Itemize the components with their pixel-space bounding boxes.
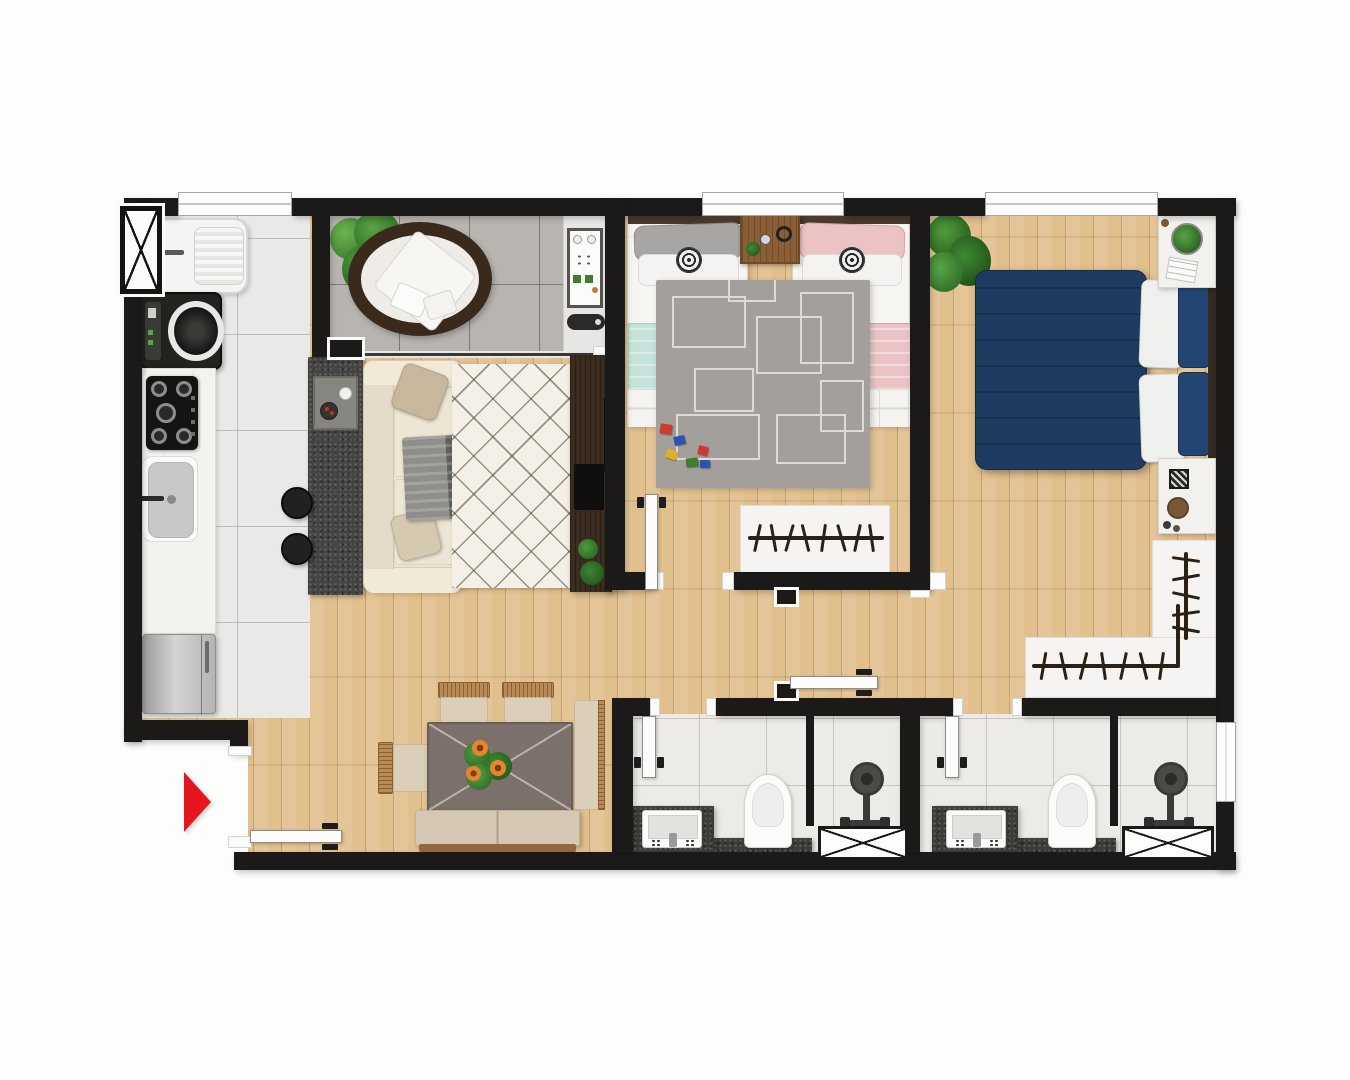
cup: [339, 387, 352, 400]
faucet-handles: [955, 839, 965, 846]
faucet-handles: [651, 839, 661, 846]
jamb-kids-wall-end: [930, 572, 946, 590]
burner: [151, 381, 167, 397]
grill-panel: [567, 228, 603, 308]
laundry-tub: [154, 218, 248, 294]
sink-faucet: [669, 833, 677, 847]
toy-block: [686, 457, 699, 467]
sofa-armrest-bottom: [364, 567, 462, 593]
wall-kids-bottom-right: [734, 572, 930, 590]
burner-center: [156, 403, 176, 423]
wall-living-kids-divider: [605, 198, 625, 590]
sink-drain: [167, 495, 176, 504]
bench-wood-edge: [419, 844, 576, 852]
shower-head-center: [861, 773, 873, 785]
master-headboard: [1208, 272, 1216, 468]
duct-shaft-bath2: [1122, 826, 1214, 860]
dining-chair-back: [438, 682, 490, 698]
rug-pattern-square: [672, 296, 746, 348]
gas-cooktop: [146, 376, 198, 450]
bath2-door-handle: [960, 757, 967, 768]
grill-green: [585, 275, 593, 283]
fridge-handle: [205, 641, 209, 673]
floor-plan: [0, 0, 1350, 1080]
plant-foliage: [925, 252, 963, 292]
grill-orange: [592, 287, 598, 293]
laundry-tub-ridges: [194, 227, 244, 285]
entry-door-leaf: [250, 830, 342, 843]
jamb-bath1-door: [650, 698, 660, 716]
gerbera-flower: [466, 766, 481, 781]
dining-bench: [415, 810, 580, 846]
nightstand-book: [1165, 257, 1198, 284]
refrigerator: [142, 634, 216, 714]
wall-bath1-left: [612, 716, 633, 852]
wall-balcony-left: [312, 214, 330, 357]
bath1-door-handle: [657, 757, 664, 768]
grill-tool-tip: [595, 319, 601, 325]
window-laundry: [178, 192, 292, 216]
wall-bath1-corner: [612, 698, 650, 716]
hall-door-handle: [856, 690, 872, 696]
gerbera-flower: [490, 760, 506, 776]
bath2-sink: [946, 810, 1006, 848]
toilet-seat: [752, 783, 784, 827]
wall-bath-top: [716, 698, 953, 716]
rug-pattern-square: [800, 292, 854, 364]
master-nightstand-bottom: [1158, 458, 1216, 534]
shower-partition-2: [1110, 716, 1118, 826]
wall-top: [292, 198, 702, 216]
burner: [176, 428, 192, 444]
wall-kids-master-divider: [910, 214, 930, 590]
jamb-bath2-door: [953, 698, 963, 716]
jamb-entry-top: [228, 746, 252, 756]
small-item: [1163, 521, 1171, 529]
window-kids-bedroom: [702, 192, 844, 216]
master-closet-rod-horizontal: [1032, 664, 1180, 668]
window-master-bedroom: [985, 192, 1158, 216]
berry: [330, 411, 334, 415]
master-nightstand-top: [1158, 214, 1216, 288]
hall-door-handle: [856, 669, 872, 675]
jamb-master-wall-end: [910, 590, 930, 598]
master-bed-duvet: [975, 270, 1147, 470]
wall-kitchen-bottom: [124, 720, 248, 740]
grill-knob: [587, 235, 596, 244]
kids-door-leaf: [645, 494, 658, 590]
jamb-kids-door: [722, 572, 734, 590]
bowl: [320, 402, 338, 420]
kids-closet-rod: [748, 536, 884, 540]
tv-panel-plant: [580, 561, 604, 585]
bar-stool: [281, 487, 313, 519]
entry-arrow: [184, 772, 211, 832]
kids-door-handle: [637, 497, 644, 508]
grill-dots: [575, 253, 595, 267]
master-pillow-navy: [1178, 372, 1210, 456]
washer-led-green: [148, 330, 153, 335]
fridge-door-seam: [201, 635, 202, 715]
faucet-handles: [685, 839, 695, 846]
round-wicker-chair: [348, 222, 492, 336]
nightstand-cup: [1161, 219, 1169, 227]
dining-chair-back: [378, 742, 393, 794]
tv: [574, 464, 604, 510]
entry-door-handle: [322, 823, 338, 829]
washer-display: [148, 308, 156, 318]
centerpiece-leaves: [460, 738, 516, 790]
bath1-sink: [642, 810, 702, 848]
dining-chair-back: [502, 682, 554, 698]
bath2-shower-head: [1154, 762, 1188, 796]
kids-rug: [656, 280, 870, 488]
wall-hall-stub-down: [777, 590, 796, 604]
faucet-handles: [989, 839, 999, 846]
rug-pattern-square: [694, 368, 754, 412]
grill-knob: [573, 235, 582, 244]
duct-shaft-bath1: [818, 826, 908, 860]
dining-chair-back-right: [598, 700, 605, 810]
bath1-shower-stem: [863, 794, 870, 822]
photo-frame: [1169, 469, 1189, 489]
toy-block: [659, 423, 672, 435]
rug-pattern-square: [728, 280, 776, 302]
exterior-ground: [100, 740, 248, 890]
bath2-shower-stem: [1167, 794, 1174, 822]
jamb-bath1-door: [706, 698, 716, 716]
washing-machine: [140, 292, 222, 370]
striped-basket: [676, 247, 702, 273]
window-casement-tall: [120, 206, 162, 294]
bath2-door-handle: [937, 757, 944, 768]
dining-chair-seat: [504, 697, 552, 724]
striped-basket: [839, 247, 865, 273]
jamb-bath2-door: [1012, 698, 1022, 716]
toilet-seat: [1056, 783, 1088, 827]
shower-partition-1: [806, 716, 814, 826]
round-tray: [1167, 497, 1189, 519]
bath1-door-leaf: [642, 716, 656, 778]
jamb-entry-bottom: [228, 836, 252, 848]
nightstand-plant: [1171, 223, 1203, 255]
shower-head-center: [1165, 773, 1177, 785]
toy-block: [700, 460, 710, 468]
sink-faucet: [973, 833, 981, 847]
master-pillow-navy: [1178, 284, 1210, 368]
dining-chair-seat: [440, 697, 488, 724]
clock: [760, 234, 771, 245]
bar-stool: [281, 533, 313, 565]
wall-bath2-top: [1022, 698, 1216, 716]
berry: [325, 407, 329, 411]
burner: [176, 381, 192, 397]
gerbera-flower: [472, 740, 488, 756]
sofa-back: [364, 385, 394, 569]
burner: [151, 428, 167, 444]
bath2-toilet: [1048, 774, 1096, 848]
chair-cushion: [373, 229, 477, 333]
bath1-toilet: [744, 774, 792, 848]
cooktop-knobs: [191, 390, 195, 436]
small-item: [1173, 525, 1180, 532]
wall-bottom: [234, 852, 1236, 870]
window-bath2: [1216, 722, 1236, 802]
grill-tool: [567, 314, 605, 330]
washer-led-green-2: [148, 340, 153, 345]
headphones: [776, 226, 792, 242]
entry-door-handle: [322, 844, 338, 850]
living-rug: [452, 364, 572, 588]
rug-pattern-square: [676, 414, 760, 460]
small-plant: [746, 242, 760, 256]
tv-panel-plant: [578, 539, 598, 559]
wall-balcony-left-foot: [330, 340, 362, 357]
rug-pattern-square: [820, 380, 864, 432]
grill-green: [573, 275, 581, 283]
bath1-shower-head: [850, 762, 884, 796]
kids-nightstand: [740, 214, 800, 264]
serving-tray: [313, 376, 358, 430]
bath2-door-leaf: [945, 716, 959, 778]
washer-drum: [168, 301, 224, 361]
kids-door-handle: [659, 497, 666, 508]
bath1-door-handle: [634, 757, 641, 768]
hall-door-leaf: [790, 676, 878, 689]
